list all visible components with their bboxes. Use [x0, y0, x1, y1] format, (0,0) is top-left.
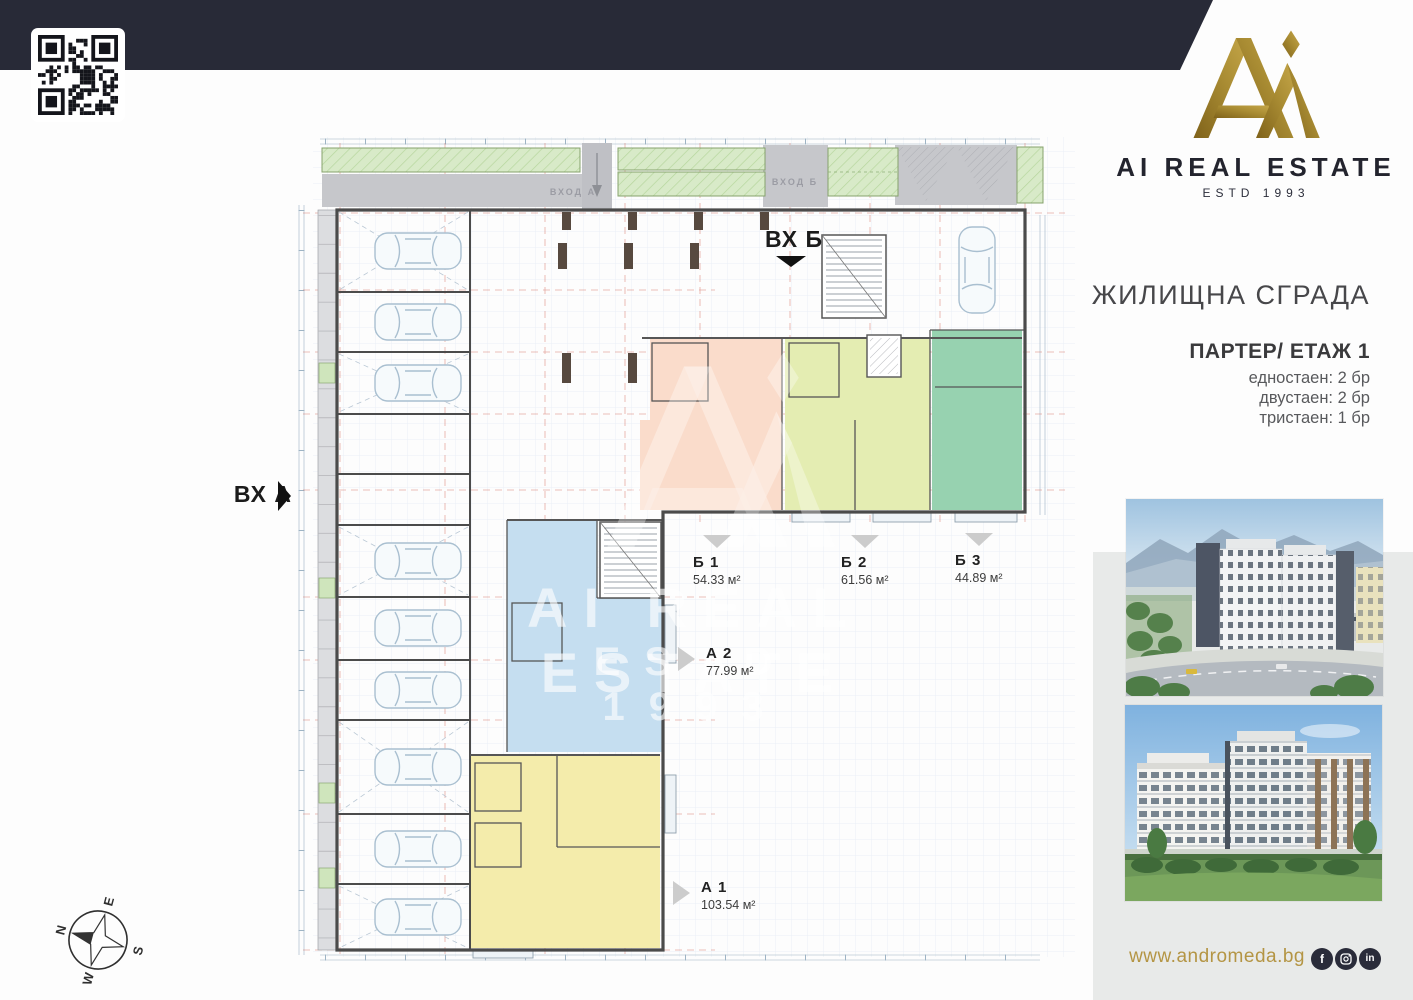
instagram-icon[interactable] — [1335, 948, 1357, 970]
brand-logo-monogram — [1181, 24, 1331, 142]
entrance-a-arrow-icon — [278, 481, 291, 511]
compass-e: E — [100, 895, 117, 908]
unit-a1-id: А 1 — [701, 879, 755, 896]
unit-b2-area — [785, 338, 930, 510]
unit-a2-id: А 2 — [706, 645, 754, 662]
unit-a2-marker-icon — [678, 647, 695, 671]
compass-s: S — [130, 944, 147, 957]
building-render-street — [1125, 705, 1382, 901]
unit-a2-area-label: 77.99 м² — [706, 664, 754, 678]
unit-b3-area-label: 44.89 м² — [955, 571, 1025, 585]
unit-label-a1: А 1 103.54 м² — [673, 879, 755, 912]
unit-b2-id: Б 2 — [841, 554, 911, 571]
compass-w: W — [79, 970, 97, 986]
unit-b1-area — [640, 338, 782, 510]
apartment-stats: едностаен: 2 бр двустаен: 2 бр тристаен:… — [1060, 368, 1370, 428]
stat-two-room: двустаен: 2 бр — [1060, 388, 1370, 408]
brand-name: AI REAL ESTATE — [1096, 152, 1413, 183]
compass-n: N — [52, 924, 69, 937]
unit-b2-marker-icon — [851, 535, 879, 548]
unit-b2-area-label: 61.56 м² — [841, 573, 911, 587]
linkedin-icon[interactable]: in — [1359, 948, 1381, 970]
unit-a1-area-label: 103.54 м² — [701, 898, 755, 912]
stat-one-room: едностаен: 2 бр — [1060, 368, 1370, 388]
facebook-icon[interactable]: f — [1311, 948, 1333, 970]
unit-b1-area-label: 54.33 м² — [693, 573, 763, 587]
building-render-aerial — [1126, 499, 1383, 696]
entrance-b-label: ВХ Б — [754, 226, 834, 253]
qr-code — [31, 28, 125, 122]
walkway-label-entrance-b: ВХОД Б — [772, 177, 818, 187]
unit-b3-area — [932, 330, 1022, 510]
entrance-b-arrow-icon — [776, 256, 806, 267]
unit-label-b3: Б 3 44.89 м² — [955, 533, 1025, 585]
floor-title: ПАРТЕР/ ЕТАЖ 1 — [1060, 340, 1370, 364]
unit-b1-marker-icon — [703, 535, 731, 548]
top-banner — [0, 0, 1213, 70]
unit-label-b1: Б 1 54.33 м² — [693, 535, 763, 587]
unit-b1-id: Б 1 — [693, 554, 763, 571]
unit-b3-marker-icon — [965, 533, 993, 546]
unit-label-a2: А 2 77.99 м² — [678, 645, 754, 678]
real-estate-floorplan-flyer: { "brand": { "name": "AI REAL ESTATE", "… — [0, 0, 1413, 1000]
qr-code-pattern — [38, 35, 118, 115]
unit-a1-marker-icon — [673, 881, 690, 905]
building-title: ЖИЛИЩНА СГРАДА — [1060, 280, 1370, 311]
unit-label-b2: Б 2 61.56 м² — [841, 535, 911, 587]
brand-estd: ESTD 1993 — [1096, 186, 1413, 200]
floor-plan: ВХОД А ВХОД Б — [295, 135, 1090, 965]
unit-b3-id: Б 3 — [955, 552, 1025, 569]
stat-three-room: тристаен: 1 бр — [1060, 408, 1370, 428]
walkway-label-entrance-a: ВХОД А — [550, 187, 596, 197]
unit-a1-area — [470, 755, 660, 948]
website-link[interactable]: www.andromeda.bg — [1120, 946, 1305, 968]
compass-rose: N E S W — [42, 890, 154, 992]
